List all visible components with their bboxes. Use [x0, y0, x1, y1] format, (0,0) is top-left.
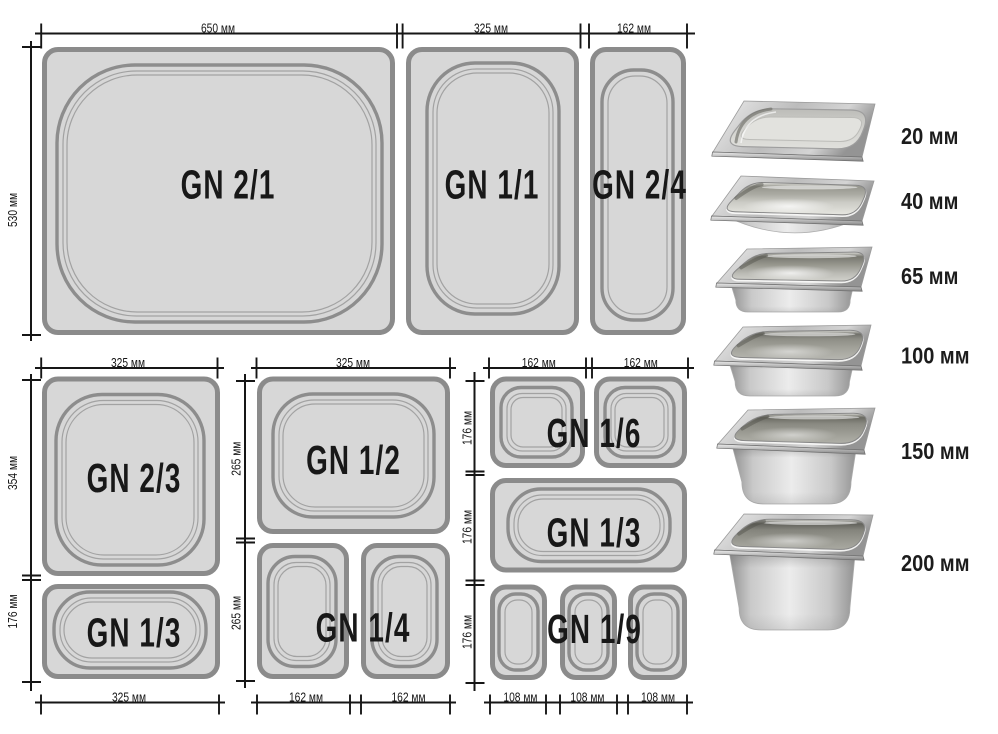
- svg-text:150 мм: 150 мм: [901, 437, 970, 464]
- svg-text:530 мм: 530 мм: [7, 193, 20, 227]
- svg-text:162 мм: 162 мм: [617, 23, 651, 36]
- svg-text:265 мм: 265 мм: [231, 442, 244, 476]
- svg-text:650 мм: 650 мм: [201, 23, 235, 36]
- svg-text:325 мм: 325 мм: [336, 357, 370, 370]
- svg-text:325 мм: 325 мм: [474, 23, 508, 36]
- svg-text:100 мм: 100 мм: [901, 342, 970, 369]
- svg-text:200 мм: 200 мм: [901, 549, 970, 576]
- svg-text:325 мм: 325 мм: [111, 357, 145, 370]
- svg-text:GN 1/2: GN 1/2: [306, 438, 401, 484]
- svg-text:40 мм: 40 мм: [901, 187, 958, 214]
- svg-text:GN 1/3: GN 1/3: [547, 510, 642, 556]
- svg-text:265 мм: 265 мм: [231, 596, 244, 630]
- svg-text:GN 2/3: GN 2/3: [87, 456, 182, 502]
- svg-text:108 мм: 108 мм: [570, 692, 604, 705]
- svg-text:162 мм: 162 мм: [391, 692, 425, 705]
- svg-text:354 мм: 354 мм: [7, 456, 20, 490]
- svg-text:162 мм: 162 мм: [289, 692, 323, 705]
- svg-text:GN 1/9: GN 1/9: [547, 607, 642, 653]
- svg-text:65 мм: 65 мм: [901, 262, 958, 289]
- svg-text:162 мм: 162 мм: [624, 357, 658, 370]
- svg-text:325 мм: 325 мм: [112, 692, 146, 705]
- svg-text:GN 1/1: GN 1/1: [445, 162, 540, 208]
- svg-text:GN 2/1: GN 2/1: [181, 162, 276, 208]
- svg-text:176 мм: 176 мм: [7, 594, 20, 628]
- svg-text:176 мм: 176 мм: [462, 411, 475, 445]
- svg-text:GN 2/4: GN 2/4: [592, 162, 687, 208]
- svg-text:GN 1/4: GN 1/4: [316, 605, 411, 651]
- svg-text:176 мм: 176 мм: [462, 510, 475, 544]
- svg-text:108 мм: 108 мм: [641, 692, 675, 705]
- svg-text:162 мм: 162 мм: [522, 357, 556, 370]
- svg-text:176 мм: 176 мм: [462, 615, 475, 649]
- svg-text:20 мм: 20 мм: [901, 122, 958, 149]
- svg-text:108 мм: 108 мм: [503, 692, 537, 705]
- svg-text:GN 1/3: GN 1/3: [87, 610, 182, 656]
- svg-text:GN 1/6: GN 1/6: [547, 411, 642, 457]
